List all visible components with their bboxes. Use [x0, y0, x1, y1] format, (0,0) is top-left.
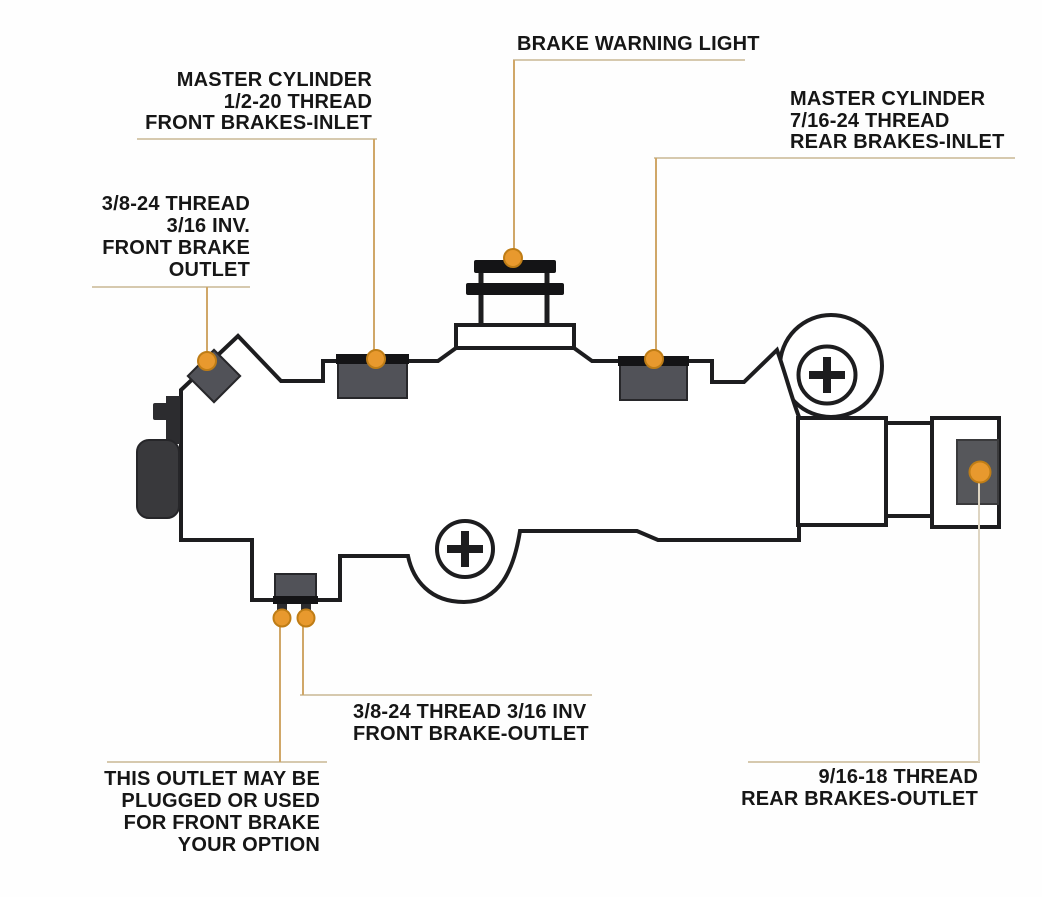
upper-screw-boss [799, 347, 856, 404]
switch-mid-bar [466, 283, 564, 295]
label-line: 1/2-20 THREAD [145, 92, 372, 114]
label-line: 3/8-24 THREAD 3/16 INV [353, 701, 589, 723]
marker-rear-outlet [970, 462, 991, 483]
label-line: 3/8-24 THREAD [102, 193, 250, 215]
label-line: MASTER CYLINDER [145, 70, 372, 92]
label-line: 9/16-18 THREAD [741, 766, 978, 788]
label-line: FRONT BRAKE-OUTLET [353, 723, 589, 745]
label-front-brake-outlet-left: 3/8-24 THREAD 3/16 INV. FRONT BRAKE OUTL… [102, 193, 250, 281]
label-optional-outlet: THIS OUTLET MAY BE PLUGGED OR USED FOR F… [104, 768, 320, 856]
switch-legs [481, 268, 547, 330]
marker-optional-outlet [274, 610, 291, 627]
label-line: REAR BRAKES-OUTLET [741, 788, 978, 810]
connector-neck [886, 423, 932, 516]
label-master-cylinder-rear: MASTER CYLINDER 7/16-24 THREAD REAR BRAK… [790, 89, 1005, 154]
marker-front-outlet-bottom [298, 610, 315, 627]
marker-front-inlet [367, 350, 385, 368]
diagram-stage: BRAKE WARNING LIGHT MASTER CYLINDER 1/2-… [0, 0, 1042, 897]
label-line: BRAKE WARNING LIGHT [517, 34, 760, 56]
label-line: THIS OUTLET MAY BE [104, 768, 320, 790]
optional-front-brake-outlet-port [273, 574, 318, 613]
label-front-brake-outlet-bottom: 3/8-24 THREAD 3/16 INV FRONT BRAKE-OUTLE… [353, 701, 589, 745]
marker-warning-light [504, 249, 522, 267]
label-line: YOUR OPTION [104, 834, 320, 856]
label-brake-warning-light: BRAKE WARNING LIGHT [517, 34, 760, 56]
label-line: REAR BRAKES-INLET [790, 132, 1005, 154]
label-line: FRONT BRAKES-INLET [145, 113, 372, 135]
label-line: PLUGGED OR USED [104, 790, 320, 812]
label-line: 7/16-24 THREAD [790, 111, 1005, 133]
lower-screw-boss [437, 521, 493, 577]
proportioning-block [798, 418, 886, 525]
label-line: FRONT BRAKE [102, 237, 250, 259]
brake-warning-light-switch [456, 260, 574, 348]
label-line: MASTER CYLINDER [790, 89, 1005, 111]
label-line: 3/16 INV. [102, 215, 250, 237]
label-rear-brakes-outlet: 9/16-18 THREAD REAR BRAKES-OUTLET [741, 766, 978, 810]
switch-pedestal [456, 325, 574, 348]
label-line: OUTLET [102, 259, 250, 281]
marker-front-outlet-diagonal [198, 352, 216, 370]
label-master-cylinder-front: MASTER CYLINDER 1/2-20 THREAD FRONT BRAK… [145, 70, 372, 135]
label-line: FOR FRONT BRAKE [104, 812, 320, 834]
left-boot [137, 396, 180, 518]
marker-rear-inlet [645, 350, 663, 368]
